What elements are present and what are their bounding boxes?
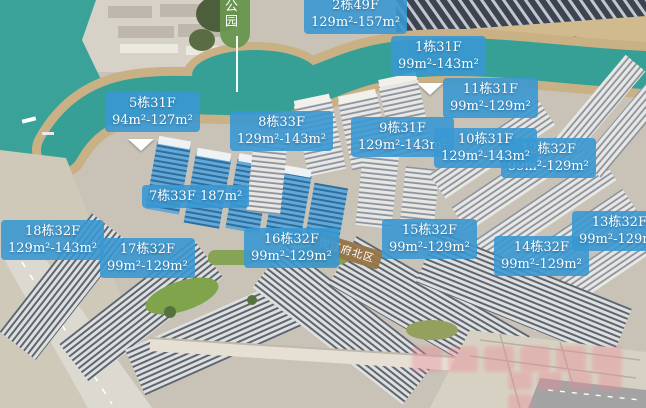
building-sizes: 99m²-143m²	[398, 56, 479, 73]
building-name: 1栋31F	[398, 39, 479, 56]
building-sizes: 99m²-129m²	[389, 239, 470, 256]
building-name: 15栋32F	[389, 222, 470, 239]
building-name: 8栋33F	[237, 114, 326, 131]
building-label-16: 16栋32F 99m²-129m²	[244, 228, 339, 268]
building-sizes: 99m²-129m²	[579, 231, 646, 248]
building-label-8: 8栋33F 129m²-143m²	[230, 111, 333, 151]
building-sizes: 129m²-157m²	[311, 14, 400, 31]
building-name: 13栋32F	[579, 214, 646, 231]
building-label-10: 10栋31F 129m²-143m²	[434, 128, 537, 168]
building-name: 18栋32F	[8, 223, 97, 240]
building-name: 7栋33F 187m²	[149, 188, 242, 205]
aerial-building-map: 公园 悦江府北区 2栋49F 129m²-157m² 1栋31F 99m²-14…	[0, 0, 646, 408]
building-sizes: 94m²-127m²	[112, 112, 193, 129]
park-pointer-line	[236, 36, 238, 92]
building-sizes: 99m²-129m²	[251, 248, 332, 265]
building-name: 14栋32F	[501, 239, 582, 256]
building-label-1: 1栋31F 99m²-143m²	[391, 36, 486, 76]
building-label-5: 5栋31F 94m²-127m²	[105, 92, 200, 132]
building-name: 10栋31F	[441, 131, 530, 148]
building-label-18: 18栋32F 129m²-143m²	[1, 220, 104, 260]
building-name: 16栋32F	[251, 231, 332, 248]
building-sizes: 99m²-129m²	[107, 258, 188, 275]
building-name: 11栋31F	[450, 81, 531, 98]
building-label-7: 7栋33F 187m²	[142, 185, 249, 208]
building-label-11: 11栋31F 99m²-129m²	[443, 78, 538, 118]
building-name: 17栋32F	[107, 241, 188, 258]
triangle-pointer-icon	[128, 139, 154, 151]
building-label-17: 17栋32F 99m²-129m²	[100, 238, 195, 278]
site-watermark	[508, 372, 646, 408]
building-name: 2栋49F	[311, 0, 400, 14]
building-name: 5栋31F	[112, 95, 193, 112]
building-label-2: 2栋49F 129m²-157m²	[304, 0, 407, 34]
building-label-13: 13栋32F 99m²-129m²	[572, 211, 646, 251]
building-sizes: 129m²-143m²	[441, 148, 530, 165]
building-sizes: 99m²-129m²	[450, 98, 531, 115]
building-sizes: 129m²-143m²	[8, 240, 97, 257]
building-label-15: 15栋32F 99m²-129m²	[382, 219, 477, 259]
triangle-pointer-icon	[417, 83, 443, 95]
building-sizes: 99m²-129m²	[501, 256, 582, 273]
building-sizes: 129m²-143m²	[237, 131, 326, 148]
park-label: 公园	[220, 0, 250, 48]
